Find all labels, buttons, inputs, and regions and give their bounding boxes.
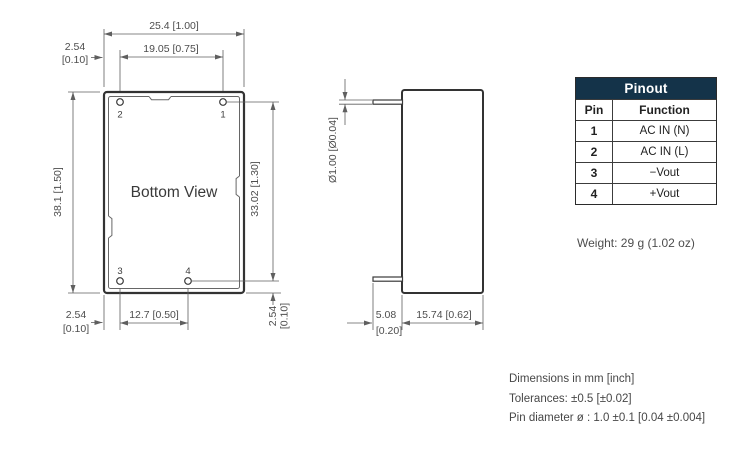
pinout-col-header-function: Function	[613, 99, 716, 120]
pin-1-label: 1	[220, 110, 225, 121]
dim-pin-diameter: Ø1.00 [Ø0.04]	[327, 79, 372, 183]
pinout-row-function: AC IN (L)	[613, 141, 716, 162]
pinout-table-title: Pinout	[576, 78, 716, 99]
pinout-row-function: +Vout	[613, 183, 716, 204]
dim-pin-to-edge-right: 2.54 [0.10]	[246, 293, 291, 329]
pin-3-label: 3	[117, 266, 122, 277]
svg-text:25.4 [1.00]: 25.4 [1.00]	[149, 20, 199, 32]
pin-2-label: 2	[117, 110, 122, 121]
bottom-view-label: Bottom View	[131, 184, 219, 201]
dim-edge-to-pin-top: 2.54 [0.10]	[62, 41, 103, 66]
svg-text:33.02 [1.30]: 33.02 [1.30]	[249, 161, 261, 217]
notch-mask	[107, 216, 109, 238]
pinout-row-function: AC IN (N)	[613, 120, 716, 141]
weight-note: Weight: 29 g (1.02 oz)	[577, 236, 695, 250]
svg-text:2.54: 2.54	[267, 306, 279, 327]
svg-text:19.05 [0.75]: 19.05 [0.75]	[143, 43, 199, 55]
pin-2-pad	[117, 99, 124, 106]
dim-pin-span-bottom: 12.7 [0.50]	[104, 288, 188, 330]
pinout-row-pin: 1	[576, 120, 613, 141]
note-tolerances: Tolerances: ±0.5 [±0.02]	[509, 390, 705, 410]
svg-text:[0.10]: [0.10]	[279, 303, 291, 329]
dim-edge-to-pin-bottom: 2.54 [0.10]	[63, 309, 103, 335]
note-pin-diameter: Pin diameter ø : 1.0 ±0.1 [0.04 ±0.004]	[509, 409, 705, 429]
note-units: Dimensions in mm [inch]	[509, 370, 705, 390]
pinout-row-function: −Vout	[613, 162, 716, 183]
dim-pin-span-right: 33.02 [1.30]	[249, 102, 273, 281]
pinout-table: Pinout Pin Function 1 AC IN (N) 2 AC IN …	[575, 77, 717, 205]
svg-text:[0.10]: [0.10]	[62, 54, 88, 66]
svg-text:38.1 [1.50]: 38.1 [1.50]	[52, 167, 64, 217]
dim-pin-span-top: 19.05 [0.75]	[120, 43, 223, 91]
svg-text:[0.10]: [0.10]	[63, 323, 89, 335]
pinout-row-pin: 4	[576, 183, 613, 204]
svg-text:12.7 [0.50]: 12.7 [0.50]	[129, 309, 179, 321]
side-view-outline	[373, 90, 483, 293]
pin-4-label: 4	[185, 266, 190, 277]
pin-1-pad	[220, 99, 227, 106]
pin-4-pad	[185, 278, 192, 285]
svg-text:Ø1.00 [Ø0.04]: Ø1.00 [Ø0.04]	[327, 117, 339, 183]
side-pin-bottom	[373, 277, 403, 281]
notch-mask	[238, 176, 240, 197]
dim-pin-length: 5.08 [0.20]	[347, 283, 402, 337]
notch-mask	[149, 95, 171, 97]
svg-text:2.54: 2.54	[65, 41, 86, 53]
technical-drawing: Bottom View 2 1 3 4 25.4 [1.00] 19.05 [0…	[0, 0, 540, 450]
svg-text:2.54: 2.54	[66, 309, 87, 321]
svg-text:15.74 [0.62]: 15.74 [0.62]	[416, 309, 472, 321]
pinout-col-header-pin: Pin	[576, 99, 613, 120]
dim-height-outer: 38.1 [1.50]	[52, 92, 100, 293]
pinout-row-pin: 2	[576, 141, 613, 162]
dim-body-depth: 15.74 [0.62]	[402, 295, 483, 330]
pin-3-pad	[117, 278, 124, 285]
svg-text:[0.20]: [0.20]	[376, 325, 402, 337]
dimension-notes: Dimensions in mm [inch] Tolerances: ±0.5…	[509, 370, 705, 429]
pinout-row-pin: 3	[576, 162, 613, 183]
svg-text:5.08: 5.08	[376, 309, 397, 321]
side-pin-top	[373, 100, 403, 104]
